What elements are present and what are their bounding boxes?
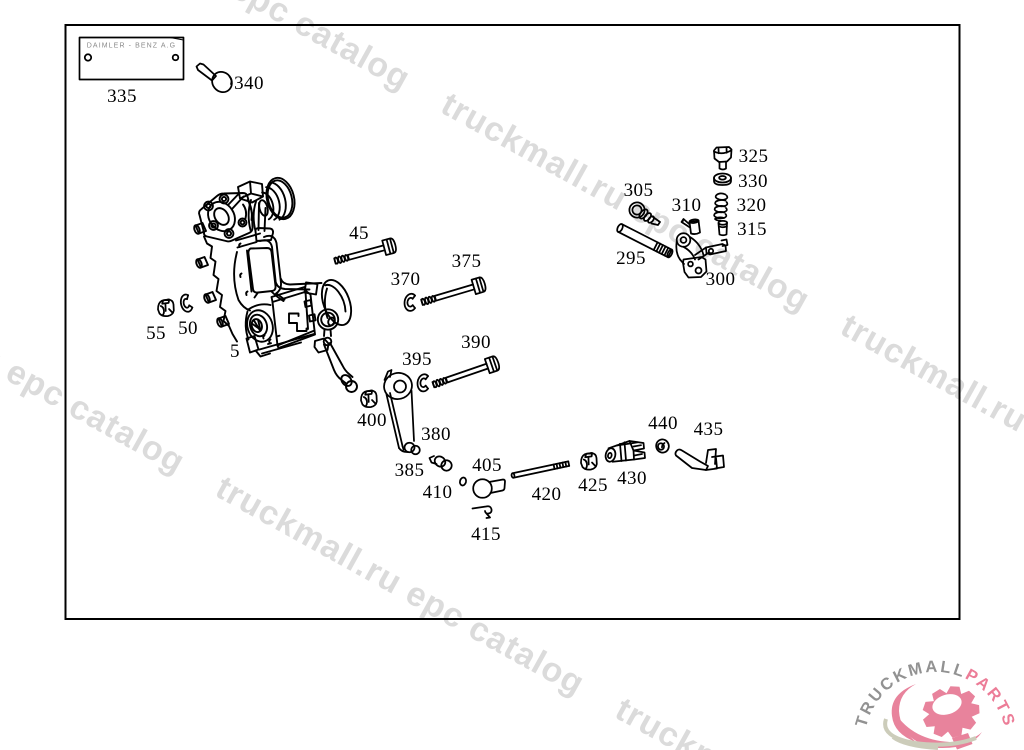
- svg-text:55: 55: [146, 323, 166, 344]
- svg-text:380: 380: [421, 424, 451, 445]
- svg-text:440: 440: [648, 413, 678, 434]
- svg-text:435: 435: [694, 419, 724, 440]
- svg-text:335: 335: [107, 86, 137, 107]
- svg-text:300: 300: [706, 269, 736, 290]
- svg-text:5: 5: [230, 341, 240, 362]
- svg-text:DAIMLER - BENZ A.G: DAIMLER - BENZ A.G: [87, 43, 176, 50]
- svg-text:425: 425: [578, 475, 608, 496]
- svg-text:405: 405: [472, 455, 502, 476]
- svg-text:430: 430: [617, 468, 647, 489]
- svg-text:45: 45: [349, 223, 369, 244]
- svg-text:390: 390: [461, 332, 491, 353]
- svg-text:395: 395: [402, 349, 432, 370]
- svg-text:305: 305: [624, 180, 654, 201]
- svg-text:340: 340: [234, 73, 264, 94]
- svg-text:385: 385: [395, 460, 425, 481]
- svg-text:370: 370: [391, 269, 421, 290]
- svg-text:415: 415: [471, 524, 501, 545]
- svg-text:400: 400: [357, 410, 387, 431]
- svg-text:50: 50: [178, 318, 198, 339]
- svg-text:310: 310: [672, 195, 702, 216]
- svg-text:330: 330: [738, 171, 768, 192]
- svg-text:295: 295: [616, 248, 646, 269]
- svg-text:320: 320: [737, 195, 767, 216]
- svg-text:420: 420: [532, 484, 562, 505]
- svg-text:410: 410: [423, 482, 453, 503]
- svg-text:315: 315: [737, 219, 767, 240]
- svg-text:325: 325: [739, 146, 769, 167]
- svg-text:375: 375: [452, 251, 482, 272]
